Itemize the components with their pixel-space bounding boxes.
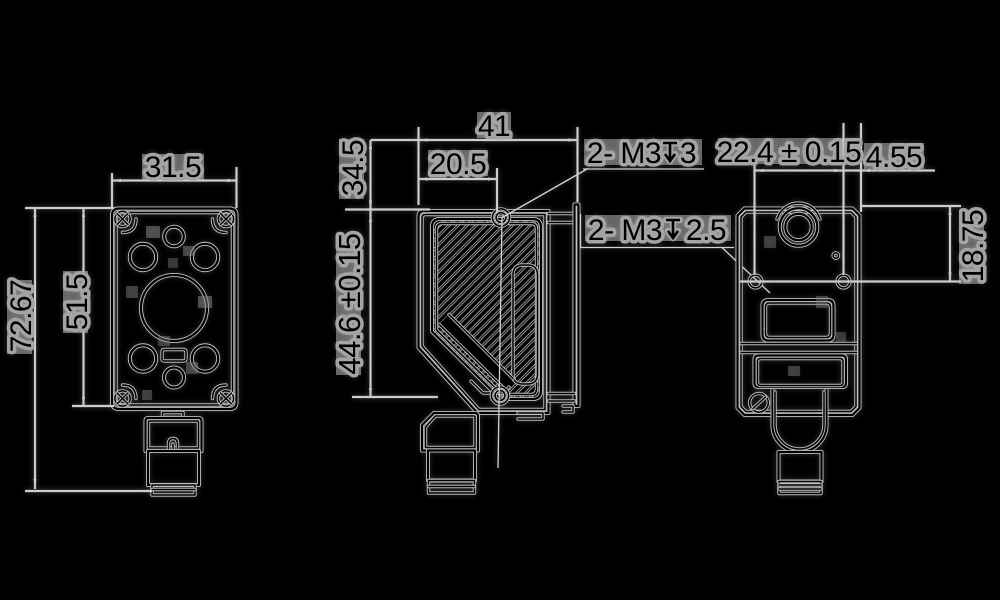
svg-text:2- M3: 2- M3 (587, 137, 661, 170)
svg-text:3: 3 (680, 137, 696, 170)
svg-text:31.5: 31.5 (145, 151, 201, 184)
svg-text:18.75: 18.75 (957, 210, 990, 283)
svg-text:51.5: 51.5 (61, 274, 94, 330)
svg-text:34.5: 34.5 (337, 140, 370, 196)
svg-text:4.55: 4.55 (866, 141, 922, 174)
svg-text:20.5: 20.5 (430, 148, 486, 181)
svg-text:2- M3: 2- M3 (588, 214, 662, 247)
svg-text:2.5: 2.5 (686, 214, 726, 247)
svg-text:72.67: 72.67 (5, 280, 38, 353)
svg-text:44.6 ±0.15: 44.6 ±0.15 (332, 233, 367, 374)
svg-text:22.4 ± 0.15: 22.4 ± 0.15 (717, 136, 861, 169)
svg-text:41: 41 (478, 110, 510, 143)
